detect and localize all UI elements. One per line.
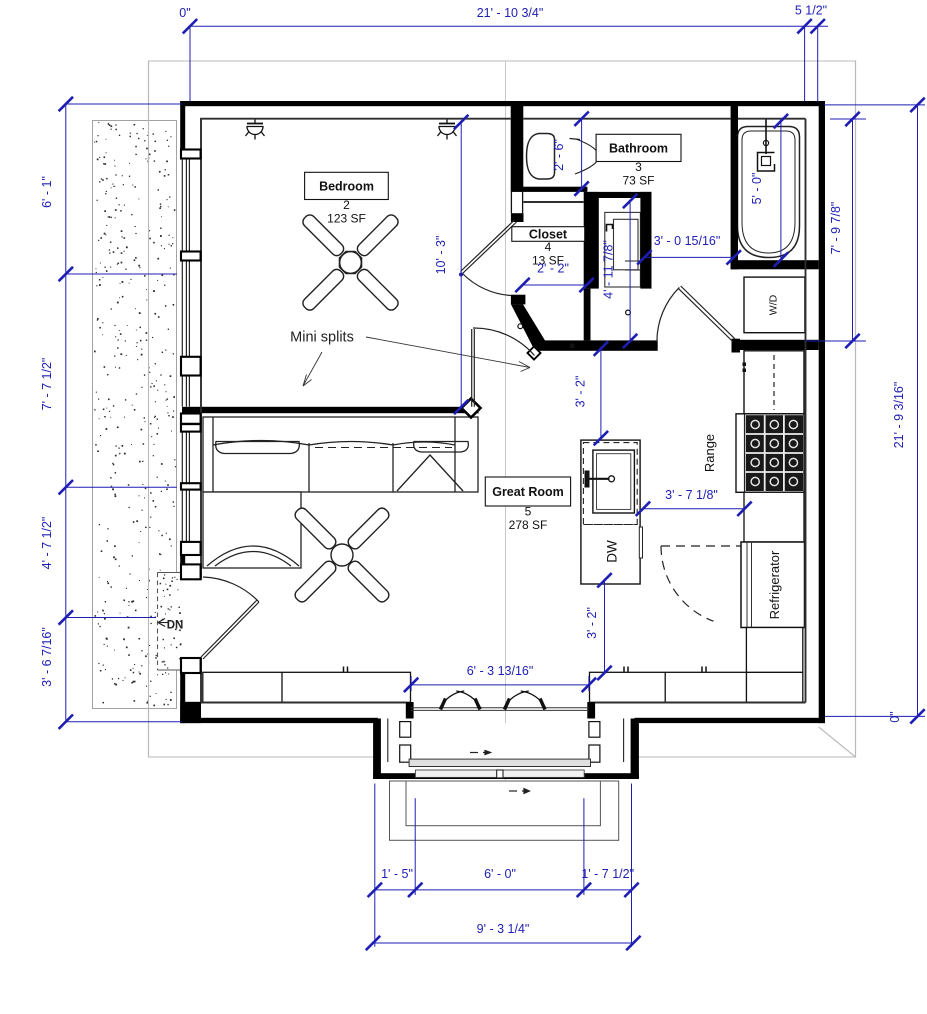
svg-text:1' - 5": 1' - 5"	[381, 867, 413, 881]
svg-text:2: 2	[343, 198, 350, 212]
svg-text:2' - 2": 2' - 2"	[537, 262, 569, 276]
svg-text:6' - 0": 6' - 0"	[484, 867, 516, 881]
svg-text:3' - 2": 3' - 2"	[585, 607, 599, 639]
svg-text:5' - 0": 5' - 0"	[750, 173, 764, 205]
svg-text:6' - 1": 6' - 1"	[40, 176, 54, 208]
svg-text:Mini splits: Mini splits	[290, 330, 354, 346]
svg-text:6' - 3 13/16": 6' - 3 13/16"	[467, 664, 534, 678]
svg-text:21' - 9 3/16": 21' - 9 3/16"	[892, 382, 906, 449]
svg-text:10' - 3": 10' - 3"	[434, 236, 448, 275]
svg-text:3' - 6 7/16": 3' - 6 7/16"	[40, 627, 54, 687]
svg-text:4' - 11 7/8": 4' - 11 7/8"	[602, 240, 616, 299]
svg-text:3' - 0 15/16": 3' - 0 15/16"	[654, 234, 721, 248]
svg-text:1' - 7 1/2": 1' - 7 1/2"	[581, 867, 634, 881]
svg-text:DN: DN	[167, 620, 184, 632]
svg-text:W/D: W/D	[768, 294, 780, 315]
svg-text:4' - 7 1/2": 4' - 7 1/2"	[40, 517, 54, 570]
svg-text:5 1/2": 5 1/2"	[795, 4, 827, 18]
svg-text:Bathroom: Bathroom	[609, 141, 668, 155]
svg-text:DW: DW	[605, 540, 620, 563]
svg-text:3' - 2": 3' - 2"	[573, 376, 587, 408]
svg-text:3' - 7 1/8": 3' - 7 1/8"	[665, 488, 718, 502]
svg-text:0": 0"	[888, 711, 902, 722]
svg-text:9' - 3 1/4": 9' - 3 1/4"	[477, 922, 530, 936]
svg-text:123 SF: 123 SF	[327, 212, 366, 226]
svg-text:73 SF: 73 SF	[622, 174, 654, 188]
svg-text:Refrigerator: Refrigerator	[767, 550, 782, 619]
svg-text:5: 5	[525, 505, 532, 519]
svg-text:2' - 6": 2' - 6"	[552, 139, 566, 171]
svg-text:3: 3	[635, 160, 642, 174]
svg-text:4: 4	[545, 240, 552, 254]
svg-text:7' - 7 1/2": 7' - 7 1/2"	[40, 358, 54, 411]
svg-text:7' - 9 7/8": 7' - 9 7/8"	[829, 202, 843, 255]
svg-text:0": 0"	[179, 6, 190, 20]
svg-text:Range: Range	[702, 434, 717, 472]
svg-text:21' - 10 3/4": 21' - 10 3/4"	[477, 6, 544, 20]
svg-text:Great Room: Great Room	[492, 485, 564, 499]
svg-text:Bedroom: Bedroom	[319, 179, 374, 193]
svg-text:278 SF: 278 SF	[509, 518, 548, 532]
